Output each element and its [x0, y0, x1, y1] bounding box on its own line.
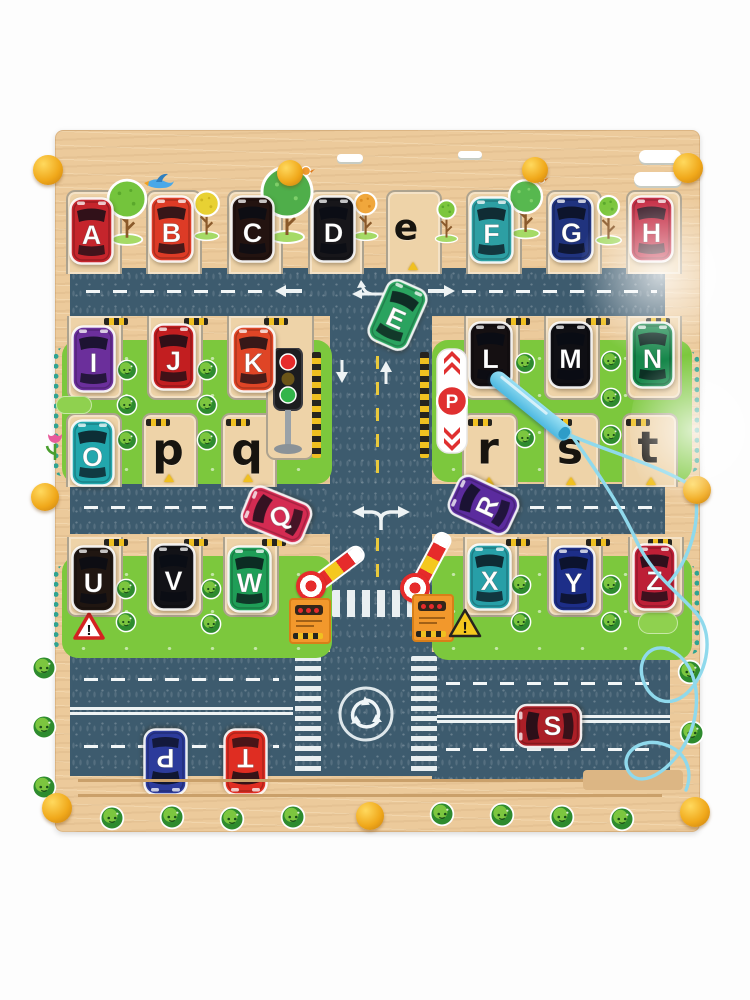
- bush-icon: [677, 659, 703, 690]
- knob: [277, 160, 303, 186]
- fork-arrow-icon: [338, 278, 386, 302]
- car-letter: L: [482, 344, 499, 374]
- arrow-left-icon: [272, 284, 304, 298]
- tulip-icon: [44, 430, 66, 464]
- car-Y: Y: [551, 545, 596, 613]
- parking-sign: P: [436, 348, 468, 454]
- knob: [356, 802, 384, 830]
- bush-icon: [196, 394, 218, 421]
- car-letter: P: [156, 743, 174, 773]
- barrier-control-box: [289, 598, 331, 644]
- bush-icon: [159, 804, 185, 835]
- cloud-icon: [337, 154, 363, 162]
- car-letter: A: [82, 220, 102, 250]
- car-S: S: [515, 704, 583, 749]
- center-line-yellow: [376, 330, 379, 480]
- bird-icon: [302, 167, 316, 176]
- bush-icon: [549, 804, 575, 835]
- bush-icon: [219, 806, 245, 837]
- knob: [33, 155, 63, 185]
- car-J: J: [151, 323, 196, 391]
- car-G: G: [549, 195, 594, 263]
- fork-arrow-icon: [342, 500, 420, 532]
- lane-marking: [446, 682, 656, 685]
- car-M: M: [548, 321, 593, 389]
- car-H: H: [629, 195, 674, 263]
- car-letter: H: [642, 218, 662, 248]
- car-T: T: [223, 728, 268, 796]
- crosswalk: [295, 656, 321, 772]
- car-letter: V: [164, 566, 182, 596]
- tree-icon: [427, 190, 466, 250]
- car-letter: I: [90, 348, 98, 378]
- arrow-right-icon: [426, 284, 458, 298]
- slot-letter-q: q: [231, 425, 263, 476]
- bush-icon: [600, 350, 622, 377]
- car-letter: N: [643, 344, 663, 374]
- lane-marking: [70, 707, 293, 710]
- hazard-strip: [264, 318, 288, 325]
- lane-marking: [530, 506, 658, 509]
- car-V: V: [151, 543, 196, 611]
- car-letter: M: [559, 344, 582, 374]
- bush-icon: [31, 714, 57, 745]
- svg-text:!: !: [87, 622, 92, 639]
- bush-icon: [196, 359, 218, 386]
- frame-notch: [583, 770, 683, 790]
- car-N: N: [630, 321, 675, 389]
- knob: [673, 153, 703, 183]
- warning-triangle-red-icon: !: [73, 612, 105, 641]
- bush-icon: [116, 429, 138, 456]
- slot-letter-e: e: [394, 208, 418, 249]
- car-letter: S: [543, 711, 561, 741]
- lane-marking: [70, 712, 293, 715]
- center-line-yellow: [376, 538, 379, 590]
- knob: [680, 797, 710, 827]
- scallop-trim: [684, 352, 699, 472]
- yellow-triangle-marker: [646, 477, 656, 485]
- bird-icon: [142, 170, 176, 194]
- parking-sign-letter: P: [446, 392, 459, 413]
- bush-icon: [510, 574, 532, 601]
- car-X: X: [467, 543, 512, 611]
- car-P: P: [143, 728, 188, 796]
- bush-icon: [600, 387, 622, 414]
- crosswalk: [411, 656, 437, 772]
- bush-icon: [600, 424, 622, 451]
- bush-icon: [514, 427, 536, 454]
- bush-icon: [116, 359, 138, 386]
- hazard-strip: [420, 352, 429, 458]
- car-letter: D: [324, 218, 344, 248]
- lane-marking: [86, 290, 266, 293]
- car-letter: O: [82, 442, 103, 472]
- lane-marking: [84, 678, 279, 681]
- slot-letter-r: r: [477, 424, 499, 475]
- car-U: U: [71, 545, 116, 613]
- bush-icon: [200, 613, 222, 640]
- car-letter: K: [244, 348, 264, 378]
- bush-icon: [489, 802, 515, 833]
- car-I: I: [71, 325, 116, 393]
- car-F: F: [469, 196, 514, 264]
- car-K: K: [231, 325, 276, 393]
- lane-marking: [84, 506, 239, 509]
- bush-icon: [115, 611, 137, 638]
- car-letter: J: [166, 346, 181, 376]
- car-D: D: [311, 195, 356, 263]
- roundabout-icon: [336, 684, 396, 744]
- bush-icon: [115, 578, 137, 605]
- bush-icon: [510, 611, 532, 638]
- cloud-icon: [458, 151, 482, 158]
- car-letter: Z: [646, 566, 663, 596]
- hazard-strip: [104, 318, 128, 325]
- car-letter: W: [237, 568, 263, 598]
- car-letter: T: [237, 743, 254, 773]
- car-B: B: [149, 195, 194, 263]
- yellow-triangle-marker: [566, 477, 576, 485]
- barrier-pivot: [296, 571, 326, 601]
- knob: [522, 157, 548, 183]
- yellow-triangle-marker: [408, 262, 418, 270]
- car-Z: Z: [632, 543, 677, 611]
- bush-icon: [600, 611, 622, 638]
- slot-letter-p: p: [152, 425, 184, 476]
- bush-icon: [280, 804, 306, 835]
- bush-icon: [116, 394, 138, 421]
- car-W: W: [227, 545, 272, 613]
- car-letter: F: [483, 219, 500, 249]
- bush-icon: [99, 805, 125, 836]
- bush-icon: [679, 720, 705, 751]
- bush-icon: [429, 801, 455, 832]
- bush-icon: [600, 574, 622, 601]
- slot-letter-t: t: [637, 423, 658, 474]
- lane-marking: [462, 290, 657, 293]
- svg-text:!: !: [462, 620, 467, 637]
- arrow-up-icon: [380, 360, 392, 384]
- knob: [31, 483, 59, 511]
- bush-icon: [196, 429, 218, 456]
- car-letter: U: [84, 568, 104, 598]
- frame-edge-line: [78, 779, 662, 782]
- knob: [42, 793, 72, 823]
- hazard-strip: [312, 352, 321, 458]
- frame-edge-line: [78, 794, 662, 797]
- car-letter: X: [480, 566, 498, 596]
- bush-icon: [200, 578, 222, 605]
- car-letter: C: [243, 218, 263, 248]
- scallop-trim: [684, 566, 699, 654]
- grass-cluster: [56, 396, 92, 414]
- toy-board-photo: P ! ! ep: [0, 0, 750, 1000]
- car-letter: G: [561, 218, 582, 248]
- arrow-down-icon: [336, 360, 348, 384]
- car-C: C: [230, 195, 275, 263]
- bush-icon: [514, 352, 536, 379]
- bush-icon: [31, 655, 57, 686]
- knob: [683, 476, 711, 504]
- grass-cluster: [638, 612, 678, 634]
- warning-triangle-yellow-icon: !: [448, 608, 482, 639]
- car-letter: B: [162, 218, 182, 248]
- car-letter: Y: [564, 568, 582, 598]
- car-A: A: [69, 197, 114, 265]
- car-O: O: [70, 419, 115, 487]
- bush-icon: [609, 806, 635, 837]
